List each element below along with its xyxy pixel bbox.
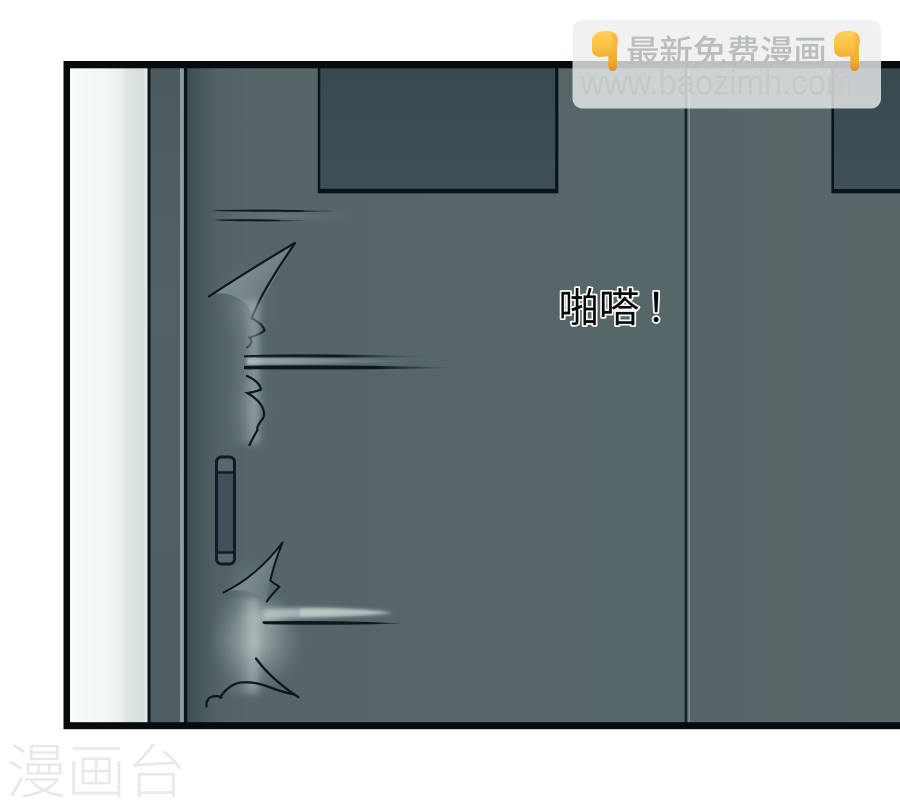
svg-text:www.baozimh.com: www.baozimh.com xyxy=(580,64,853,103)
